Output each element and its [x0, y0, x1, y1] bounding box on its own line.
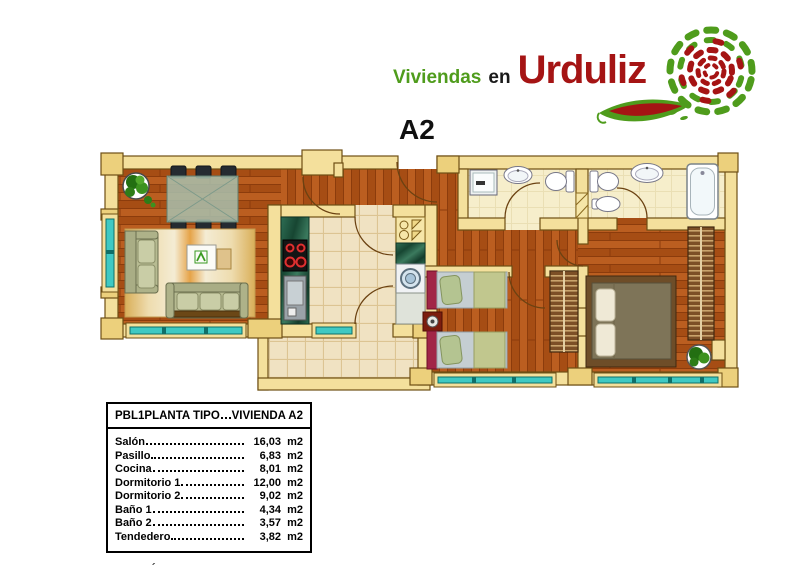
nightstand-lamp [423, 312, 442, 331]
toilet-bath2 [590, 171, 619, 192]
logo-word-urduliz: Urduliz [518, 48, 647, 93]
row-unit: m2 [281, 436, 303, 450]
row-label: Pasillo [115, 450, 150, 464]
wardrobe-dormitorio2 [550, 271, 578, 352]
header-right: VIVIENDA A2 [232, 410, 303, 422]
washing-machine [396, 264, 425, 293]
bathtub [687, 164, 718, 219]
area-table: PBL1PLANTA TIPO VIVIENDA A2 Salón 16,03 … [106, 402, 312, 565]
row-value: 6,83 [245, 450, 281, 464]
row-value: 16,03 [245, 436, 281, 450]
dot-leader [153, 511, 244, 513]
area-table-box: PBL1PLANTA TIPO VIVIENDA A2 Salón 16,03 … [106, 402, 312, 553]
dot-leader [146, 443, 244, 445]
area-row-dormitorio2: Dormitorio 2 9,02 m2 [115, 490, 303, 504]
counter-lower [396, 293, 425, 324]
row-unit: m2 [281, 517, 303, 531]
row-value: 3,82 [245, 531, 281, 545]
toilet-bath1 [546, 171, 575, 192]
logo-word-viviendas: Viviendas [393, 67, 481, 89]
dot-leader [181, 497, 244, 499]
row-label: Baño 2 [115, 517, 152, 531]
shower [470, 170, 497, 195]
double-bed [586, 276, 676, 367]
area-table-header: PBL1PLANTA TIPO VIVIENDA A2 [108, 409, 310, 429]
brand-logo: Viviendas en Urduliz [393, 48, 646, 93]
header-left: PBL1PLANTA TIPO [115, 410, 220, 422]
unit-label: A2 [399, 114, 435, 146]
dot-leader [221, 417, 231, 419]
row-value: 8,01 [245, 463, 281, 477]
counter-right [396, 243, 425, 264]
row-value: 12,00 [245, 477, 281, 491]
divider-cabinet [576, 193, 588, 218]
dot-leader [171, 538, 244, 540]
loveseat [125, 231, 158, 293]
logo-leaf-swoosh-icon [596, 94, 692, 128]
area-row-tendedero: Tendedero 3,82 m2 [115, 531, 303, 545]
dot-leader [151, 457, 244, 459]
window-left [102, 214, 118, 292]
row-label: Salón [115, 436, 145, 450]
window-dormitorio1 [594, 373, 722, 387]
row-unit: m2 [281, 490, 303, 504]
sink-bath1 [504, 167, 532, 184]
area-row-bano1: Baño 1 4,34 m2 [115, 504, 303, 518]
sofa [166, 283, 248, 318]
window-cocina [312, 323, 356, 338]
row-value: 4,34 [245, 504, 281, 518]
dot-leader [153, 524, 244, 526]
row-label: Tendedero [115, 531, 170, 545]
dot-leader [153, 470, 244, 472]
row-label: Baño 1 [115, 504, 152, 518]
row-unit: m2 [281, 504, 303, 518]
window-dormitorio2 [434, 373, 556, 387]
row-label: Dormitorio 2 [115, 490, 180, 504]
page: Viviendas en Urduliz A2 PBL1PLANTA TIPO … [0, 0, 800, 565]
row-label: Cocina [115, 463, 152, 477]
area-row-bano2: Baño 2 3,57 m2 [115, 517, 303, 531]
wardrobe-dormitorio1 [688, 227, 714, 340]
plant-icon-dormitorio1 [687, 345, 711, 369]
area-row-dormitorio1: Dormitorio 1 12,00 m2 [115, 477, 303, 491]
row-unit: m2 [281, 450, 303, 464]
window-salon [126, 323, 246, 338]
row-value: 9,02 [245, 490, 281, 504]
dish-cabinet [396, 217, 425, 243]
row-label: Dormitorio 1 [115, 477, 180, 491]
row-value: 3,57 [245, 517, 281, 531]
coffee-table [187, 245, 231, 270]
single-bed-a [427, 271, 507, 309]
area-row-pasillo: Pasillo 6,83 m2 [115, 450, 303, 464]
dot-leader [181, 484, 244, 486]
area-row-salon: Salón 16,03 m2 [115, 436, 303, 450]
row-unit: m2 [281, 531, 303, 545]
kitchen-sink [284, 276, 306, 320]
area-row-cocina: Cocina 8,01 m2 [115, 463, 303, 477]
row-unit: m2 [281, 463, 303, 477]
stove [283, 240, 307, 271]
sink-bath2 [631, 164, 663, 183]
bidet [592, 197, 620, 212]
single-bed-b [427, 331, 507, 369]
dining-table [167, 176, 238, 222]
row-unit: m2 [281, 477, 303, 491]
logo-word-en: en [488, 67, 510, 89]
